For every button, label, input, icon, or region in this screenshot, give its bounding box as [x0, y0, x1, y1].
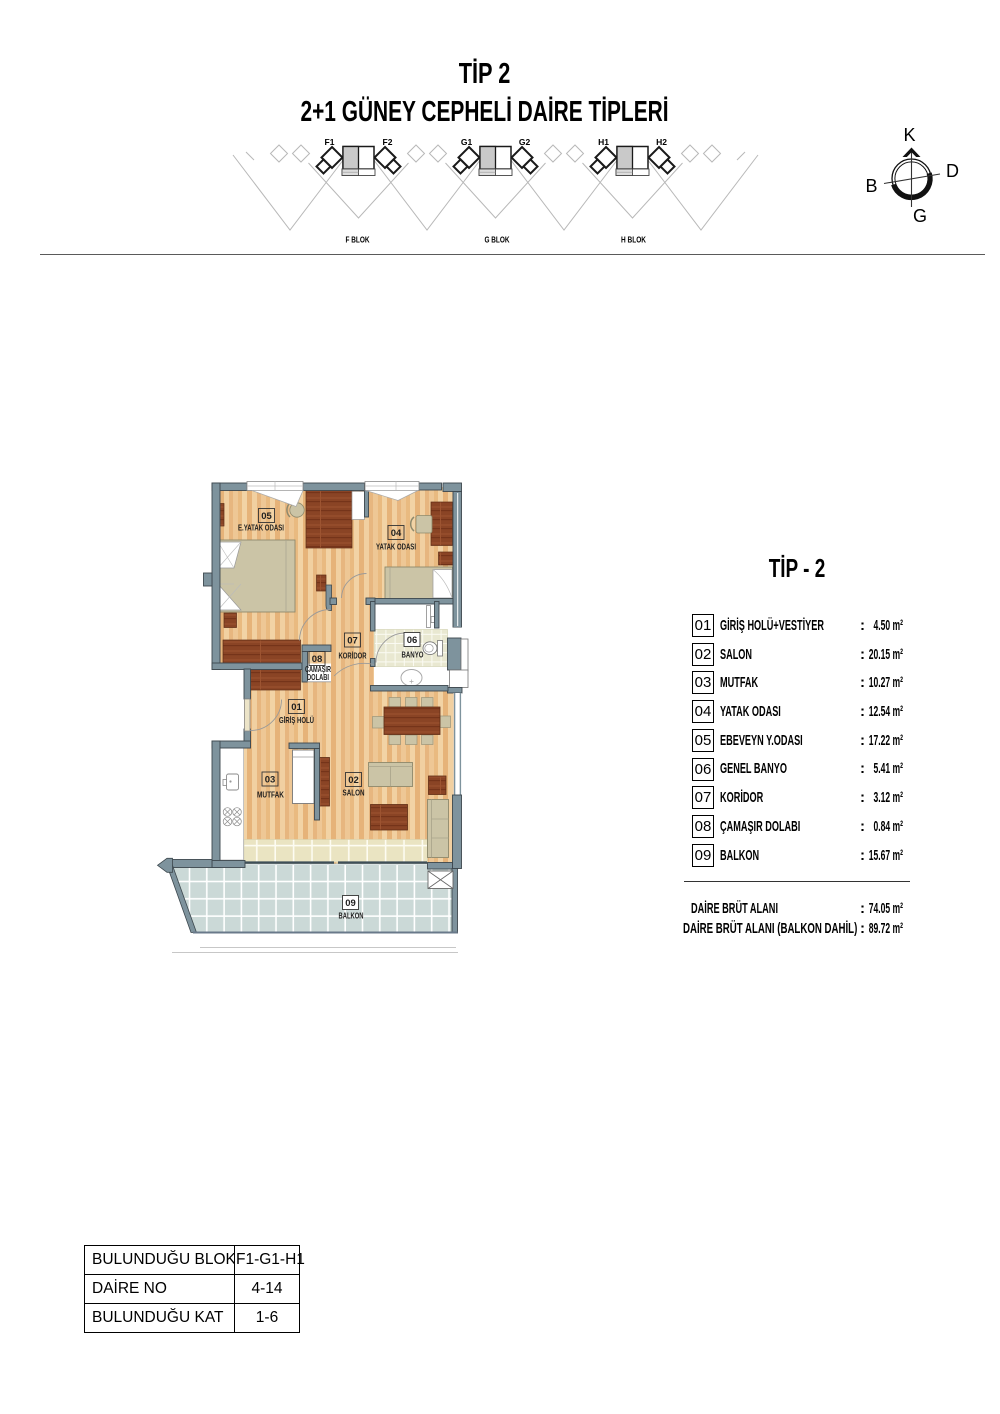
svg-text:D: D [946, 161, 959, 181]
svg-text:G2: G2 [519, 137, 531, 147]
svg-text:G BLOK: G BLOK [485, 235, 511, 245]
svg-text:02: 02 [348, 775, 359, 786]
svg-text:GİRİŞ HOLÜ: GİRİŞ HOLÜ [279, 715, 314, 725]
svg-text:H BLOK: H BLOK [621, 235, 647, 245]
svg-text:F BLOK: F BLOK [346, 235, 371, 245]
svg-text:07: 07 [347, 636, 358, 647]
svg-text:F1: F1 [325, 137, 335, 147]
svg-text:BANYO: BANYO [402, 650, 424, 660]
svg-text:H2: H2 [656, 137, 667, 147]
svg-text:09: 09 [345, 898, 356, 909]
svg-text:BALKON: BALKON [339, 911, 364, 921]
svg-text:F2: F2 [383, 137, 393, 147]
svg-text:04: 04 [391, 528, 402, 539]
svg-text:YATAK ODASI: YATAK ODASI [376, 542, 416, 552]
svg-text:05: 05 [261, 511, 272, 522]
svg-text:SALON: SALON [343, 788, 365, 798]
svg-text:K: K [903, 125, 915, 145]
svg-text:G1: G1 [461, 137, 473, 147]
svg-text:H1: H1 [598, 137, 609, 147]
svg-text:G: G [913, 206, 927, 226]
svg-text:KORİDOR: KORİDOR [339, 651, 367, 661]
svg-text:06: 06 [407, 635, 418, 646]
svg-text:01: 01 [291, 702, 302, 713]
svg-text:MUTFAK: MUTFAK [257, 790, 284, 800]
svg-text:B: B [865, 176, 877, 196]
svg-text:03: 03 [265, 775, 276, 786]
svg-text:DOLABI: DOLABI [307, 672, 329, 682]
svg-text:E.YATAK ODASI: E.YATAK ODASI [238, 523, 284, 533]
